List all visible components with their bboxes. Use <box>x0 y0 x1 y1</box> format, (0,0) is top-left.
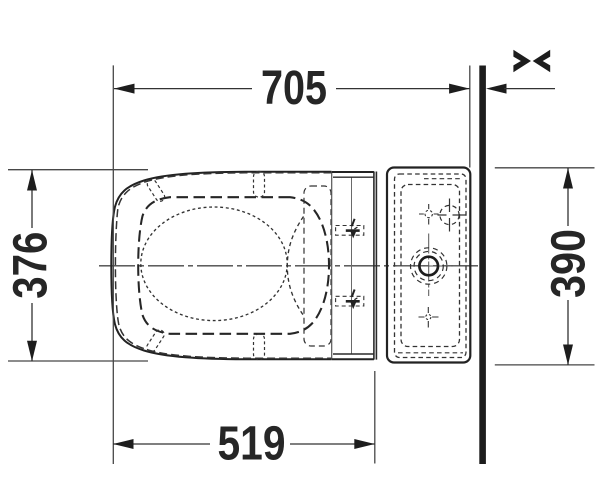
svg-text:519: 519 <box>218 417 286 471</box>
svg-text:376: 376 <box>4 232 58 299</box>
svg-text:705: 705 <box>261 61 327 115</box>
svg-text:390: 390 <box>542 229 596 298</box>
